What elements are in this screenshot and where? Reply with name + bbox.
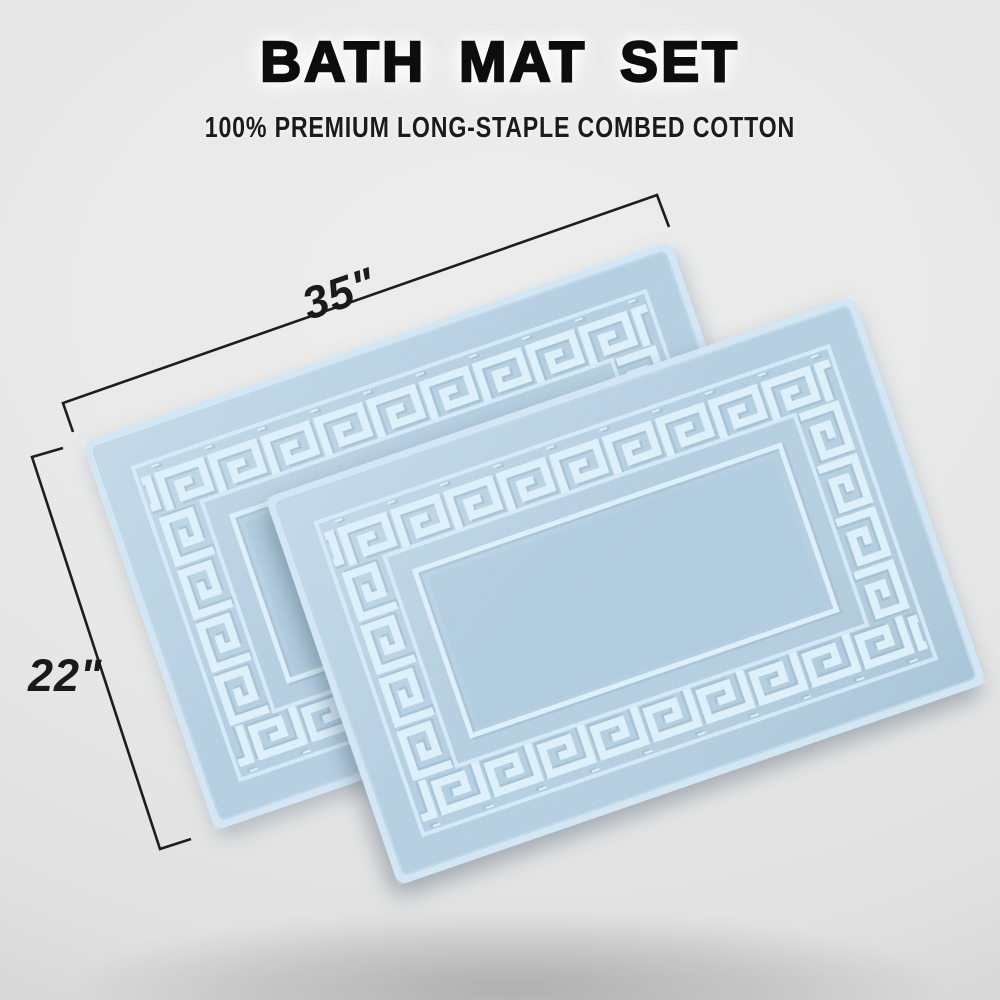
product-subtitle-row: 100% PREMIUM LONG-STAPLE COMBED COTTON: [0, 112, 1000, 145]
width-dimension-label: 35": [296, 257, 383, 330]
ground-shadow: [70, 912, 950, 1000]
product-image-canvas: BATH MAT SET 100% PREMIUM LONG-STAPLE CO…: [0, 0, 1000, 1000]
product-subtitle: 100% PREMIUM LONG-STAPLE COMBED COTTON: [205, 112, 795, 145]
product-title: BATH MAT SET: [0, 31, 1000, 94]
height-dimension-label: 22": [28, 650, 102, 702]
